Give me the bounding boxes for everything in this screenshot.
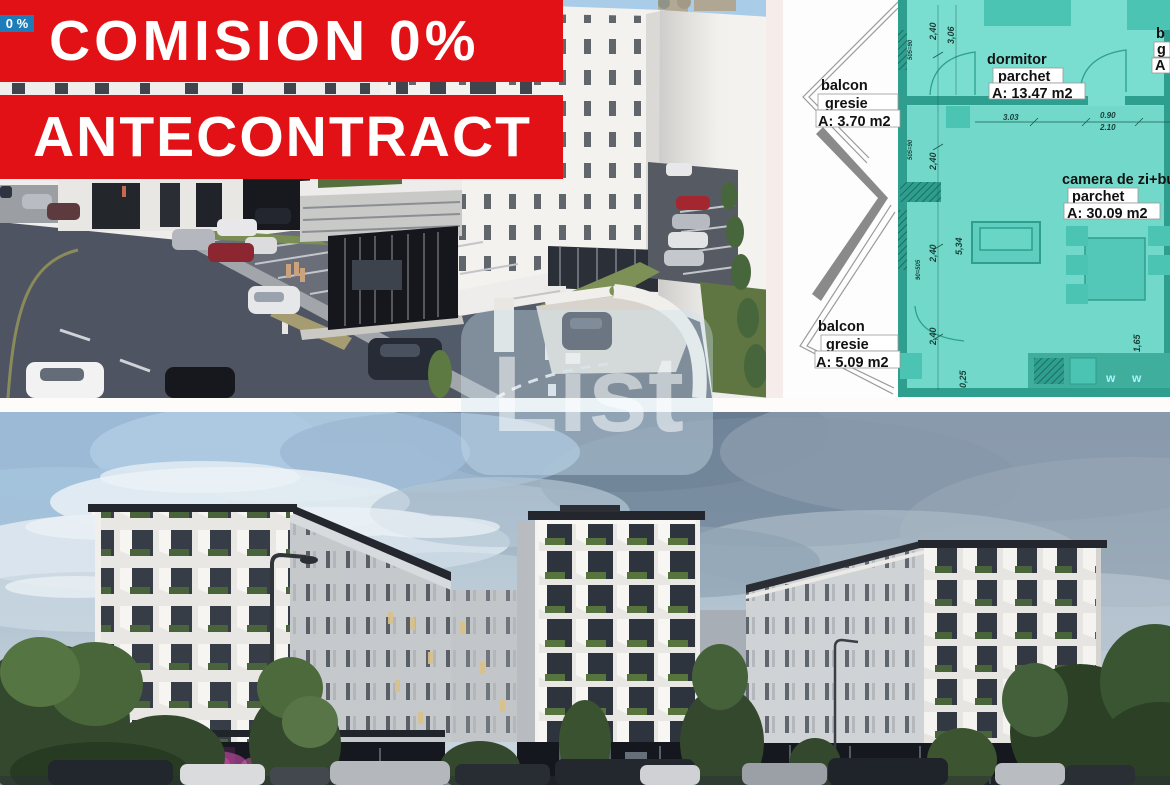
svg-text:505=90: 505=90 — [908, 39, 914, 60]
svg-text:90=505: 90=505 — [916, 259, 922, 280]
svg-text:balcon: balcon — [818, 319, 865, 335]
svg-text:w: w — [1131, 371, 1142, 385]
svg-text:2,40: 2,40 — [928, 244, 938, 263]
svg-text:3.03: 3.03 — [1003, 113, 1019, 122]
svg-text:w: w — [1105, 371, 1116, 385]
svg-text:A: 3.70 m2: A: 3.70 m2 — [818, 114, 891, 130]
svg-text:dormitor: dormitor — [987, 52, 1047, 68]
svg-text:parchet: parchet — [998, 69, 1051, 85]
svg-text:2,40: 2,40 — [928, 152, 938, 171]
svg-text:2,40: 2,40 — [928, 22, 938, 41]
svg-text:A: 13.47 m2: A: 13.47 m2 — [992, 86, 1073, 102]
svg-text:b: b — [1156, 26, 1165, 42]
svg-text:1,65: 1,65 — [1132, 333, 1142, 352]
svg-text:camera de zi+bu: camera de zi+bu — [1062, 172, 1170, 188]
svg-text:505=90: 505=90 — [908, 139, 914, 160]
svg-text:5,34: 5,34 — [954, 237, 964, 255]
svg-text:2,40: 2,40 — [928, 327, 938, 346]
svg-text:A: 5.09 m2: A: 5.09 m2 — [816, 355, 889, 371]
svg-text:A: A — [1155, 58, 1166, 74]
svg-text:2.10: 2.10 — [1099, 123, 1116, 132]
svg-text:3,06: 3,06 — [946, 25, 956, 44]
svg-text:balcon: balcon — [821, 78, 868, 94]
svg-text:g: g — [1157, 42, 1166, 58]
svg-text:0,25: 0,25 — [958, 369, 968, 388]
svg-text:gresie: gresie — [825, 96, 868, 112]
svg-text:0.90: 0.90 — [1100, 111, 1116, 120]
svg-text:A: 30.09 m2: A: 30.09 m2 — [1067, 206, 1148, 222]
